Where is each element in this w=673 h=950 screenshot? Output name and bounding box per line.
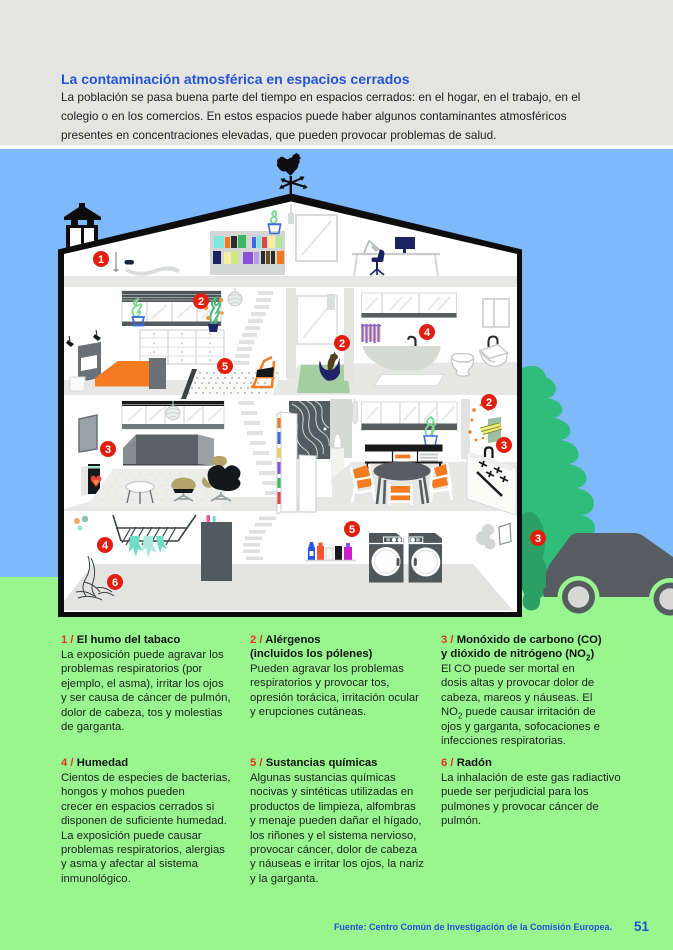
- svg-text:4: 4: [102, 540, 109, 552]
- svg-text:3: 3: [501, 440, 507, 452]
- svg-text:3: 3: [105, 444, 111, 456]
- svg-text:6: 6: [112, 577, 118, 589]
- svg-text:5: 5: [222, 361, 228, 373]
- svg-text:2: 2: [486, 397, 492, 409]
- svg-text:3: 3: [535, 533, 541, 545]
- svg-text:4: 4: [424, 327, 431, 339]
- svg-text:5: 5: [349, 524, 355, 536]
- svg-text:1: 1: [98, 254, 104, 266]
- svg-text:2: 2: [339, 338, 345, 350]
- svg-text:2: 2: [198, 296, 204, 308]
